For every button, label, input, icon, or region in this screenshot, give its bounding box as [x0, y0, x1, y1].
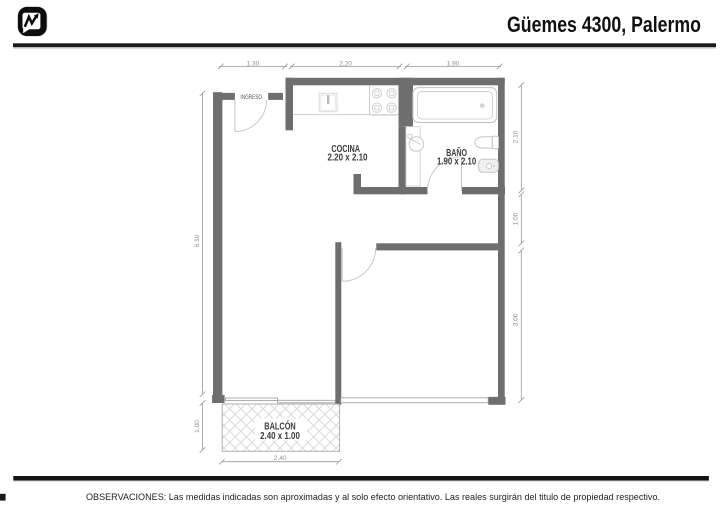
svg-text:2.20 x 2.10: 2.20 x 2.10: [328, 153, 368, 164]
svg-text:INGRESO: INGRESO: [240, 95, 262, 101]
svg-text:Güemes 4300, Palermo: Güemes 4300, Palermo: [507, 12, 701, 37]
svg-text:OBSERVACIONES: Las medidas ind: OBSERVACIONES: Las medidas indicadas son…: [86, 492, 660, 502]
svg-text:1.00: 1.00: [512, 212, 519, 225]
svg-text:1.90: 1.90: [447, 60, 460, 67]
svg-text:1.90 x 2.10: 1.90 x 2.10: [437, 157, 476, 168]
svg-text:2.20: 2.20: [339, 60, 352, 67]
svg-text:2.40: 2.40: [274, 455, 287, 462]
svg-text:1.30: 1.30: [246, 60, 259, 67]
svg-text:2.10: 2.10: [512, 130, 519, 143]
svg-text:6.10: 6.10: [194, 234, 201, 247]
svg-text:2.40 x 1.00: 2.40 x 1.00: [260, 431, 300, 442]
svg-text:1.00: 1.00: [194, 420, 201, 433]
svg-text:3.00: 3.00: [512, 313, 519, 326]
